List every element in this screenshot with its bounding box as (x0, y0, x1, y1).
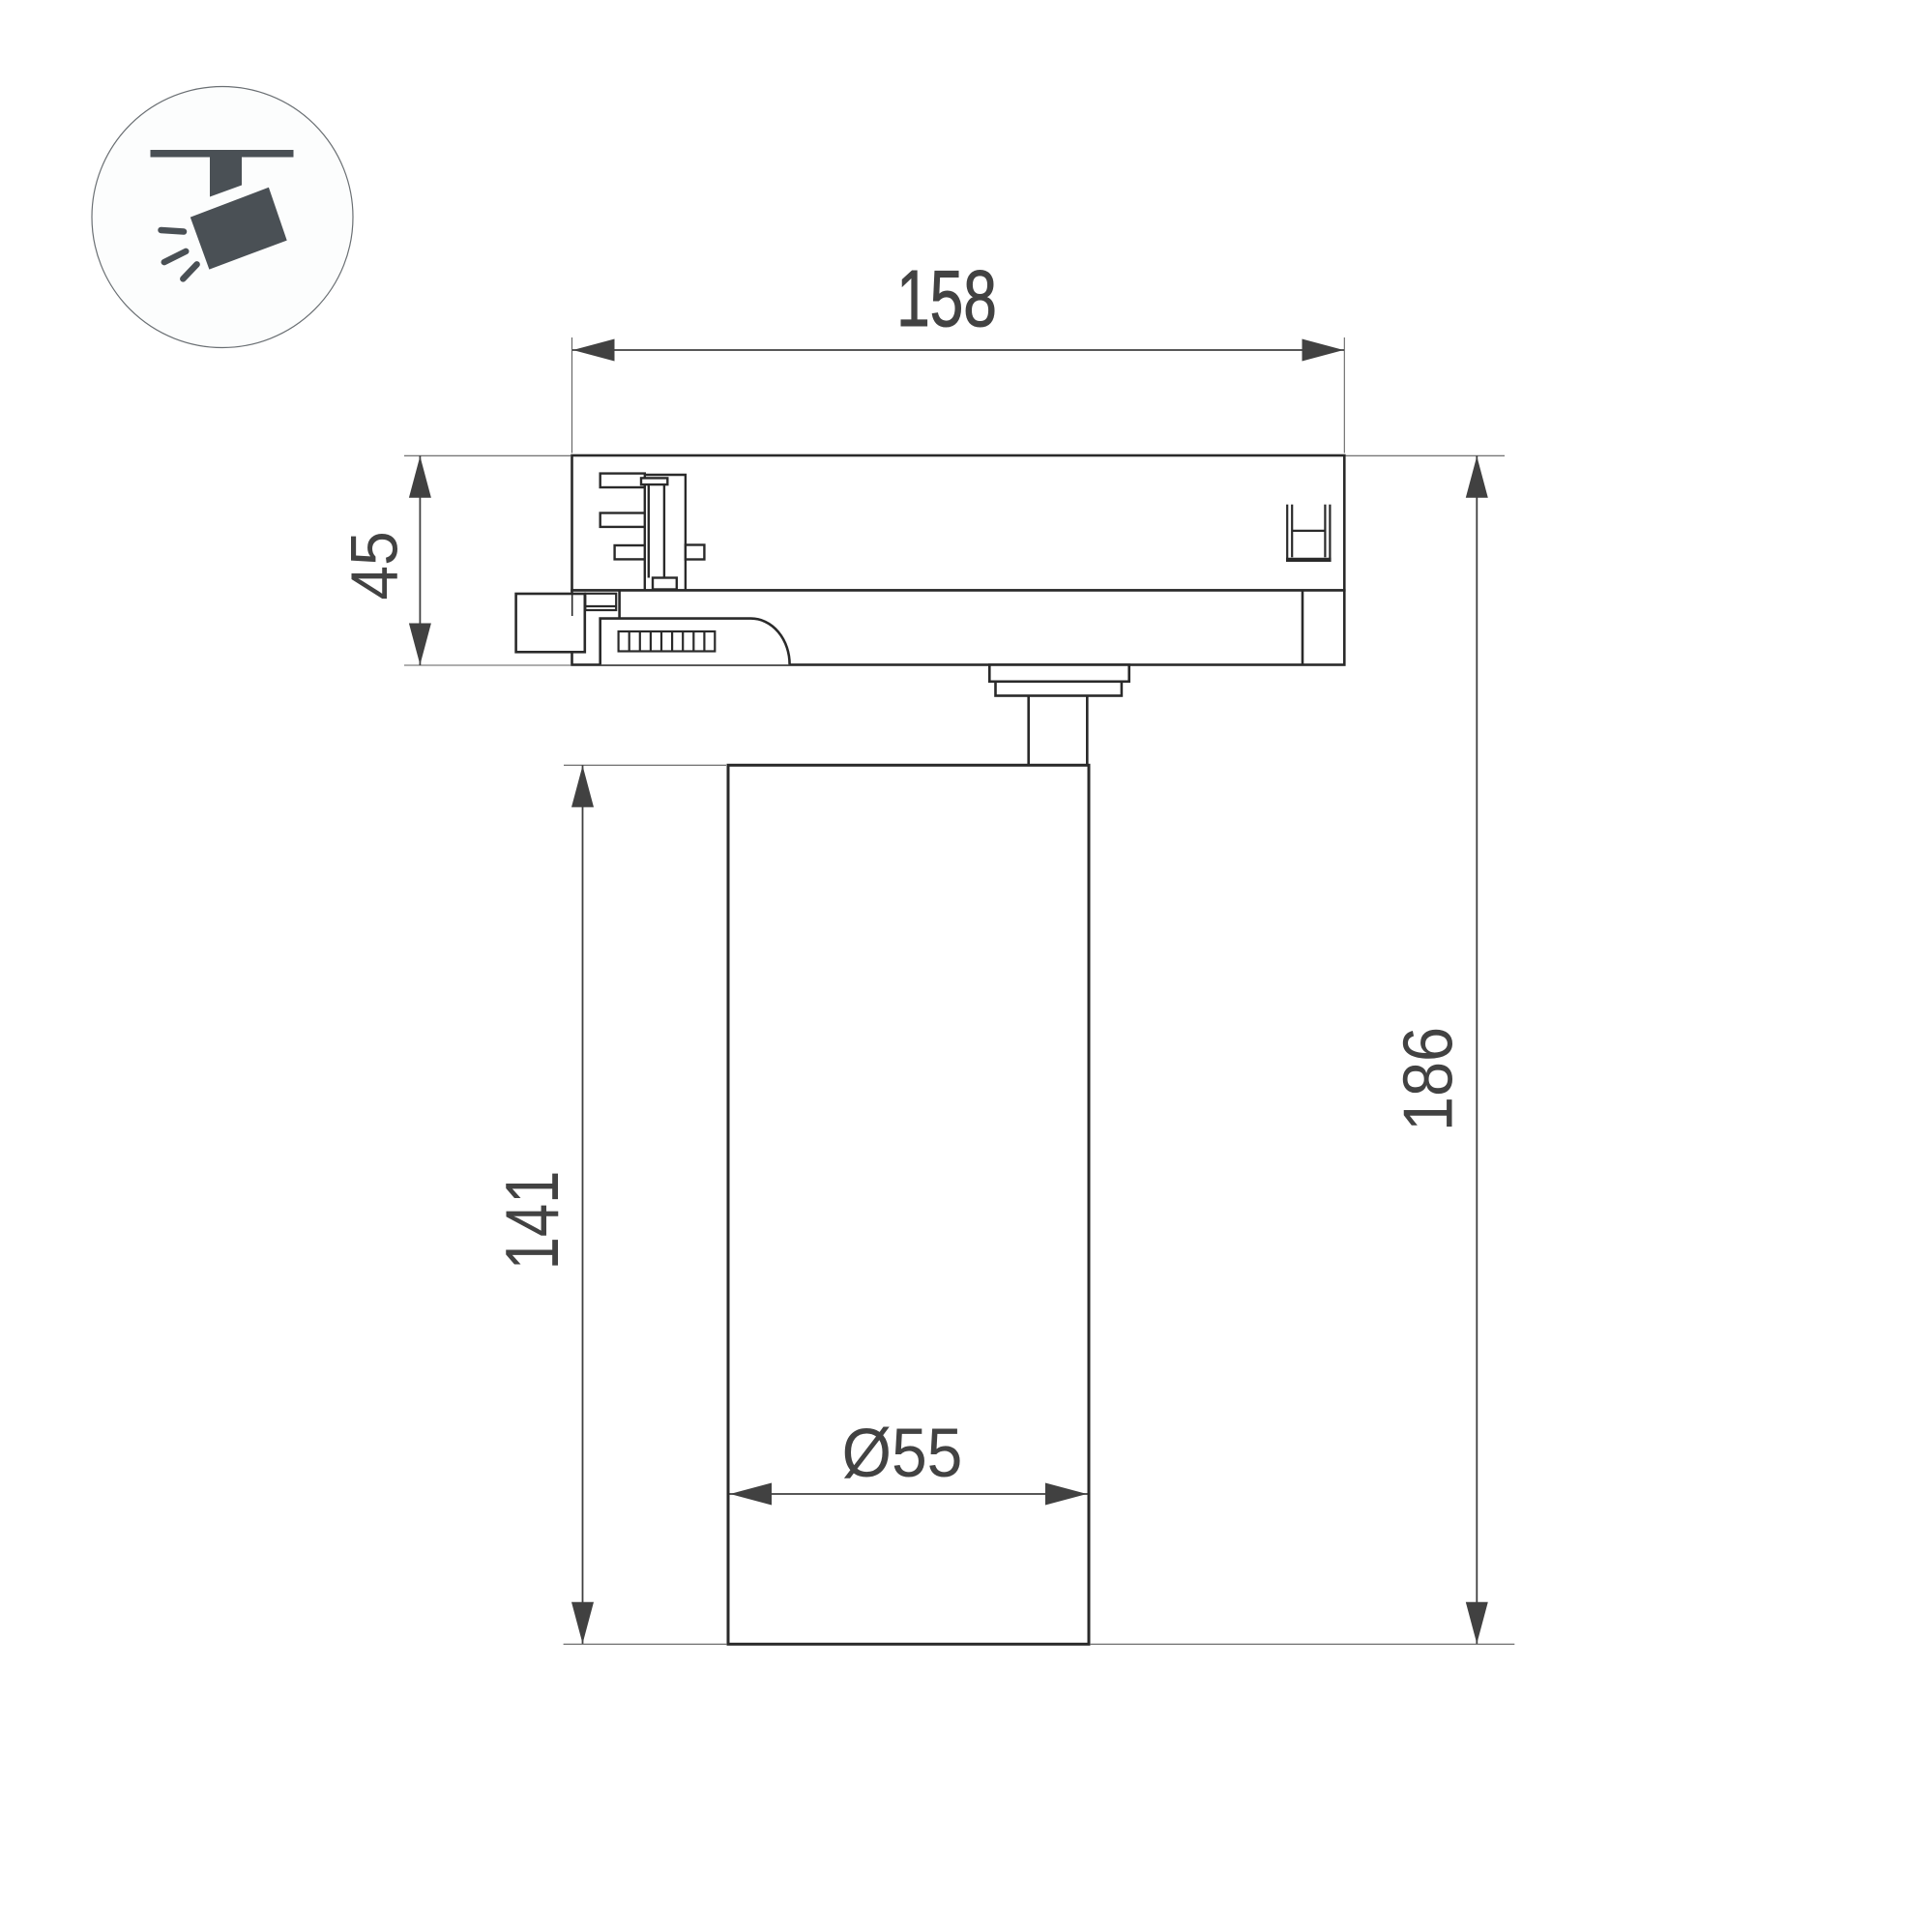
svg-text:45: 45 (337, 531, 412, 600)
svg-text:158: 158 (896, 253, 997, 343)
svg-text:141: 141 (489, 1171, 574, 1271)
svg-text:186: 186 (1389, 1027, 1467, 1131)
svg-text:Ø55: Ø55 (842, 1415, 963, 1492)
